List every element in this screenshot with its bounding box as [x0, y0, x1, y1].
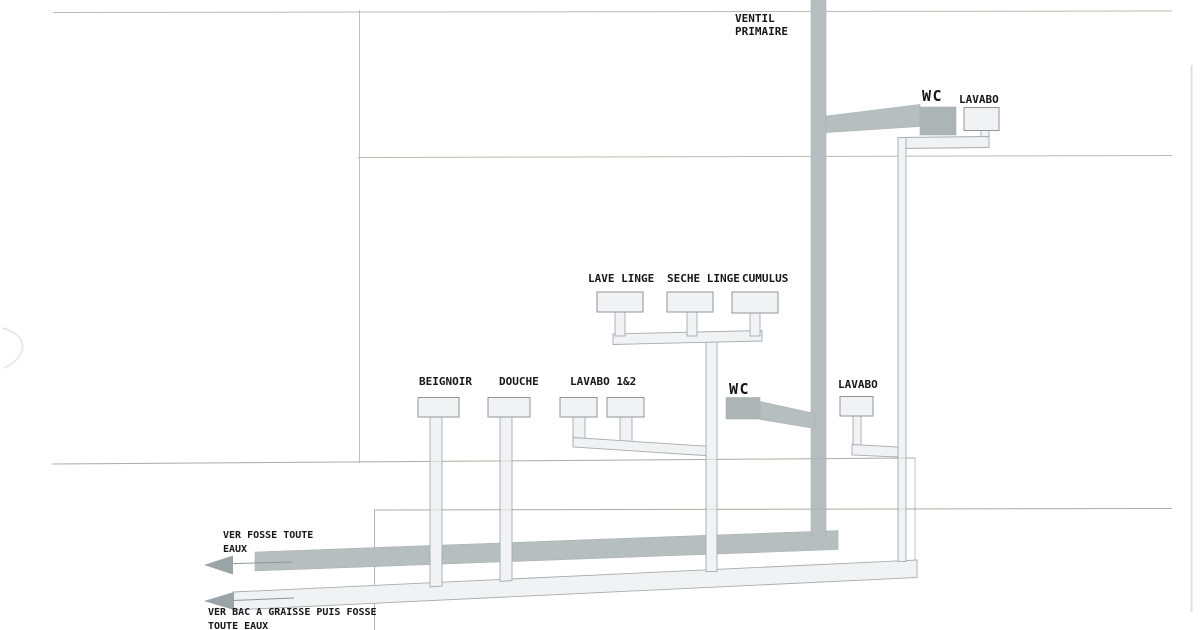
ceiling-line [358, 156, 1172, 158]
outlet-fosse-label-line2: EAUX [223, 545, 247, 555]
ventil-primaire-label-line2: PRIMAIRE [735, 26, 788, 37]
lower-wc-branch-pipe [760, 402, 815, 429]
lave-linge-label: LAVE LINGE [588, 273, 654, 284]
lavabo-12-label: LAVABO 1&2 [570, 376, 636, 387]
basement-line-overlay [374, 509, 1172, 511]
lavabo2-drain-stub [620, 417, 632, 442]
lavabo12-drain-pipe [573, 438, 712, 457]
roof-line [53, 11, 1172, 13]
pipes-drawing [0, 0, 1200, 630]
seche-linge-unit [667, 292, 713, 312]
ground-line-overlay [52, 458, 915, 464]
lower-lavabo-drain-elbow [852, 445, 898, 458]
beignoir-unit [418, 398, 459, 418]
lower-wc-label: WC [729, 382, 750, 397]
outlet-fosse-label-line1: VER FOSSE TOUTE [223, 531, 313, 541]
lower-lavabo-unit [840, 397, 873, 417]
scan-artifact-mark [2, 328, 23, 368]
lavabo1-unit [560, 398, 597, 418]
cumulus-drain-stub [750, 313, 760, 336]
lower-lavabo-label: LAVABO [838, 379, 878, 390]
lave-linge-drain-stub [615, 312, 625, 336]
lower-lavabo-drain-stub [853, 416, 861, 446]
outlet-graisse-label-line1: VER BAC A GRAISSE PUIS FOSSE [208, 608, 377, 618]
upper-wc-label: WC [922, 89, 943, 104]
upper-lavabo-label: LAVABO [959, 94, 999, 105]
blackwater-collector-pipe [255, 531, 838, 572]
secondary-stack-pipe [898, 138, 906, 562]
douche-unit [488, 398, 530, 418]
outlet-graisse-label-line2: TOUTE EAUX [208, 622, 268, 630]
beignoir-drain-pipe [430, 417, 442, 587]
upper-lavabo-unit [964, 108, 999, 131]
ventil-primaire-label-line1: VENTIL [735, 13, 775, 24]
main-stack-pipe [811, 0, 826, 536]
beignoir-label: BEIGNOIR [419, 376, 472, 387]
upper-wc-branch-pipe [826, 105, 920, 133]
cumulus-unit [732, 292, 778, 313]
plumbing-schematic: VENTIL PRIMAIRE WC LAVABO LAVE LINGE SEC… [0, 0, 1200, 630]
upper-lavabo-drain-elbow [898, 137, 989, 149]
douche-label: DOUCHE [499, 376, 539, 387]
seche-linge-label: SECHE LINGE [667, 273, 740, 284]
upper-wc-unit [920, 107, 956, 135]
manifold-drain-pipe [706, 340, 717, 572]
cumulus-label: CUMULUS [742, 273, 788, 284]
douche-drain-pipe [500, 417, 512, 582]
lavabo2-unit [607, 398, 644, 418]
lave-linge-unit [597, 292, 643, 312]
lower-wc-unit [726, 398, 760, 420]
seche-linge-drain-stub [687, 312, 697, 336]
flow-arrow-left-icon [204, 556, 233, 575]
